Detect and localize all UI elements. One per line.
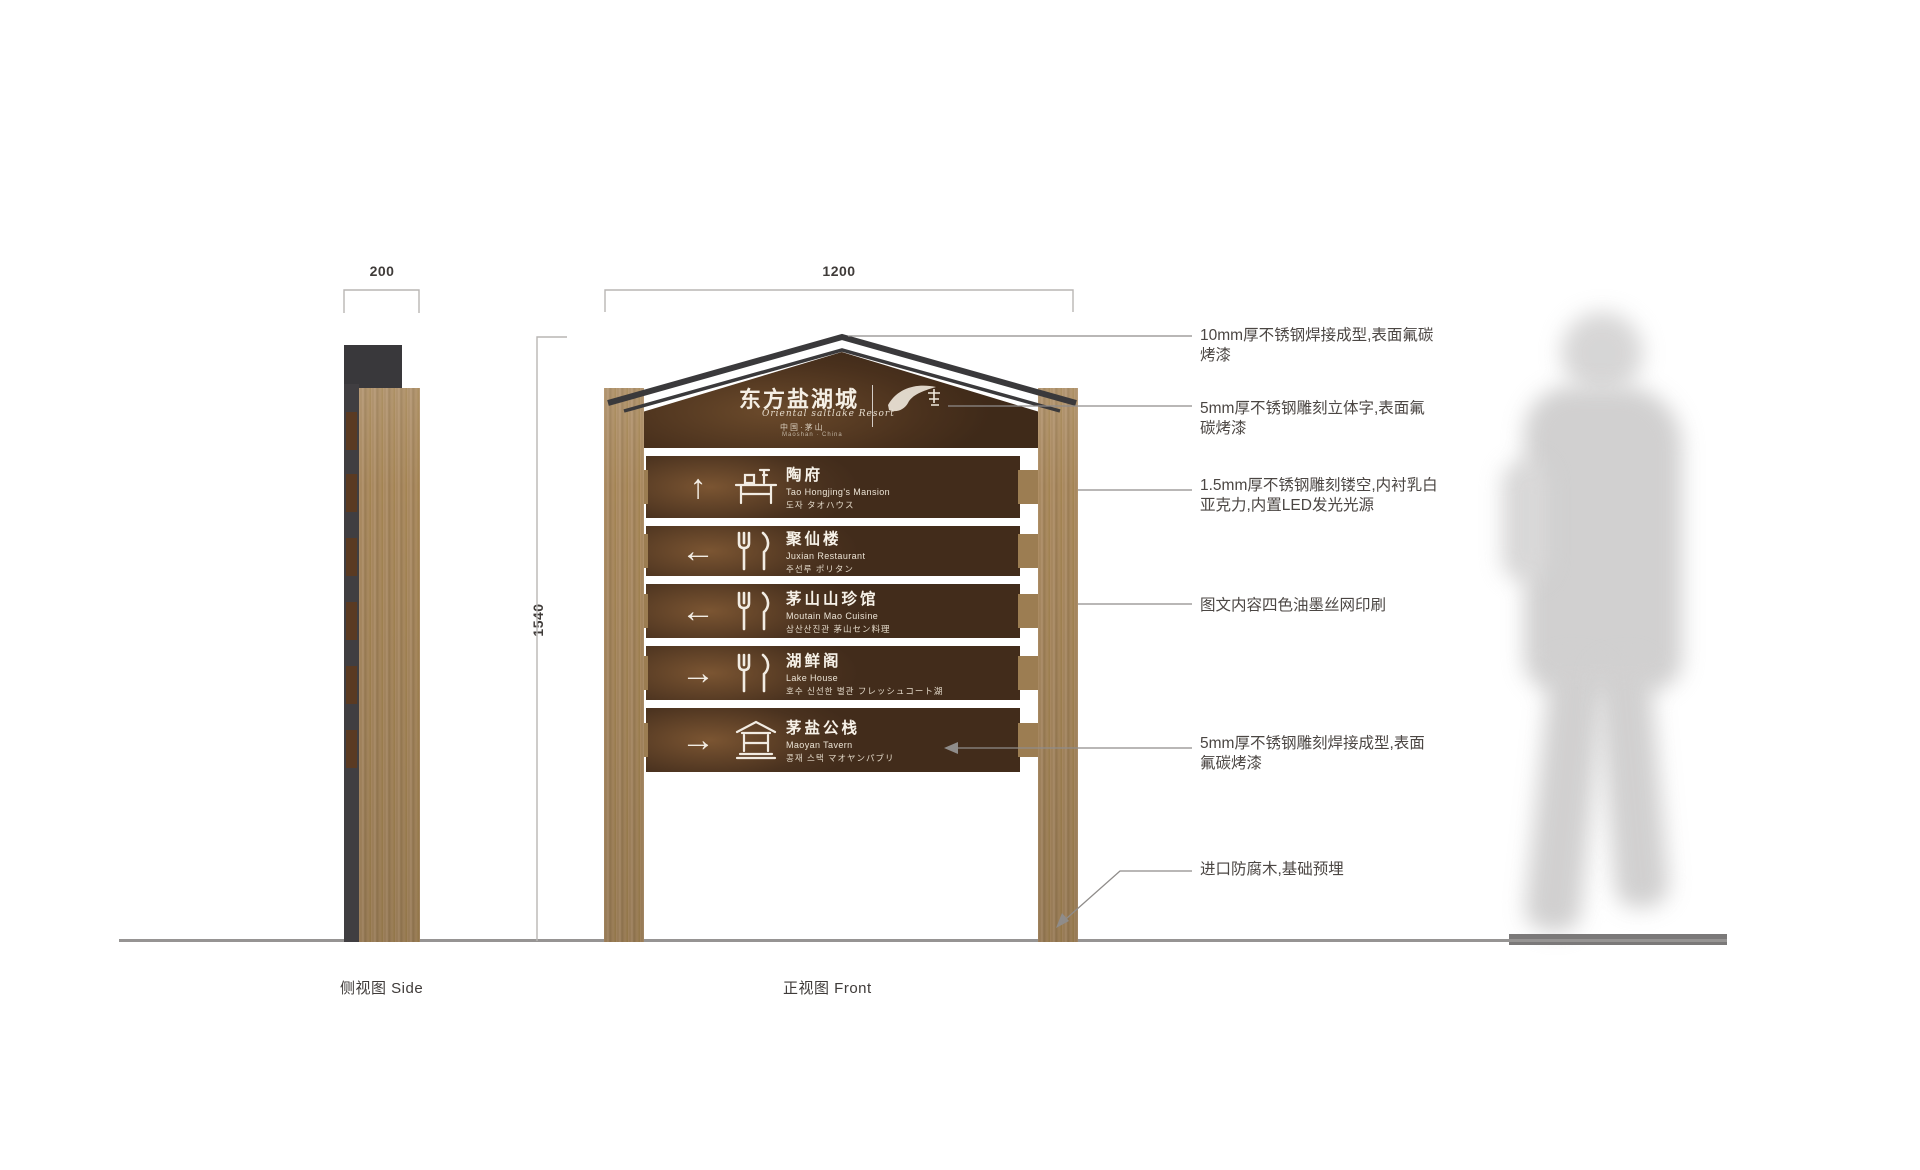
destination-name-en: Lake House	[786, 673, 943, 683]
sign-header-board: 东方盐湖城 Oriental saltlake Resort 中国·茅山 Mao…	[644, 352, 1038, 448]
annotation-relief-letters: 5mm厚不锈钢雕刻立体字,表面氟碳烤漆	[1200, 399, 1438, 439]
destination-name-cn: 湖鲜阁	[786, 649, 943, 671]
direction-arrow-icon: ↑	[676, 470, 720, 504]
board-edge-notch	[346, 412, 357, 450]
destination-name-en: Juxian Restaurant	[786, 551, 865, 561]
direction-arrow-icon: →	[676, 656, 720, 690]
side-view-steel-cap	[344, 345, 402, 389]
sign-board-row: ← 茅山山珍馆 Moutain Mao Cuisine 삼산산진관 茅山セン料理	[646, 584, 1020, 638]
destination-name-cn: 聚仙楼	[786, 527, 865, 549]
human-scale-silhouette	[1480, 290, 1770, 950]
annotation-carved-weld: 5mm厚不锈钢雕刻焊接成型,表面氟碳烤漆	[1200, 734, 1438, 774]
direction-arrow-icon: →	[676, 723, 720, 757]
row-pictogram	[732, 650, 780, 696]
dimension-total-height: 1540	[530, 590, 546, 650]
direction-arrow-icon: ←	[676, 534, 720, 568]
board-edge-notch	[346, 666, 357, 704]
destination-name-intl: 호수 신선한 별관 フレッシュコート湖	[786, 685, 943, 697]
signage-spec-sheet: 200 1200 1540 东方盐湖城 Oriental saltlake Re…	[0, 0, 1920, 1170]
row-pictogram	[732, 464, 780, 510]
row-pictogram	[732, 588, 780, 634]
sign-board-row: ↑ 陶府 Tao Hongjing's Mansion 도자 タオハウス	[646, 456, 1020, 518]
silhouette-leg	[1595, 658, 1670, 910]
calligraphy-brand-mark-icon	[884, 379, 948, 423]
board-edge-notch	[346, 538, 357, 576]
destination-name-en: Moutain Mao Cuisine	[786, 611, 890, 621]
sign-board-row: → 湖鲜阁 Lake House 호수 신선한 별관 フレッシュコート湖	[646, 646, 1020, 700]
destination-name-cn: 陶府	[786, 463, 890, 485]
silhouette-arm	[1502, 462, 1548, 580]
destination-name-intl: 도자 タオハウス	[786, 499, 890, 511]
dimension-front-width: 1200	[799, 263, 879, 279]
sign-board-row: → 茅盐公栈 Maoyan Tavern 콩재 스택 マオヤンパブリ	[646, 708, 1020, 772]
destination-name-intl: 콩재 스택 マオヤンパブリ	[786, 752, 895, 764]
destination-name-cn: 茅山山珍馆	[786, 587, 890, 609]
destination-name-cn: 茅盐公栈	[786, 716, 895, 738]
annotation-steel-weld: 10mm厚不锈钢焊接成型,表面氟碳烤漆	[1200, 326, 1438, 366]
logo-divider	[872, 385, 873, 427]
silhouette-leg	[1523, 658, 1607, 934]
annotation-silkscreen: 图文内容四色油墨丝网印刷	[1200, 596, 1438, 616]
side-view-label: 侧视图 Side	[340, 977, 423, 998]
destination-name-en: Maoyan Tavern	[786, 740, 895, 750]
row-pictogram	[732, 717, 780, 763]
side-view-panel-edge	[344, 384, 359, 942]
annotation-wood-base: 进口防腐木,基础预埋	[1200, 860, 1438, 880]
row-pictogram	[732, 528, 780, 574]
front-view-label: 正视图 Front	[783, 977, 872, 998]
site-origin-en: Maoshan · China	[782, 432, 843, 438]
side-view-wood-post	[359, 388, 420, 942]
front-post-left	[604, 388, 644, 942]
silhouette-head	[1561, 312, 1643, 394]
mansion-icon	[732, 464, 780, 510]
site-title-script: Oriental saltlake Resort	[762, 409, 895, 419]
board-edge-notch	[346, 474, 357, 512]
annotation-led-cutout: 1.5mm厚不锈钢雕刻镂空,内衬乳白亚克力,内置LED发光光源	[1200, 476, 1438, 516]
board-edge-notch	[346, 602, 357, 640]
destination-name-intl: 삼산산진관 茅山セン料理	[786, 623, 890, 635]
direction-arrow-icon: ←	[676, 594, 720, 628]
destination-name-intl: 주선루 ポリタン	[786, 563, 865, 575]
dimension-side-width: 200	[352, 263, 412, 279]
sign-board-row: ← 聚仙楼 Juxian Restaurant 주선루 ポリタン	[646, 526, 1020, 576]
destination-name-en: Tao Hongjing's Mansion	[786, 487, 890, 497]
front-post-right	[1038, 388, 1078, 942]
board-edge-notch	[346, 730, 357, 768]
